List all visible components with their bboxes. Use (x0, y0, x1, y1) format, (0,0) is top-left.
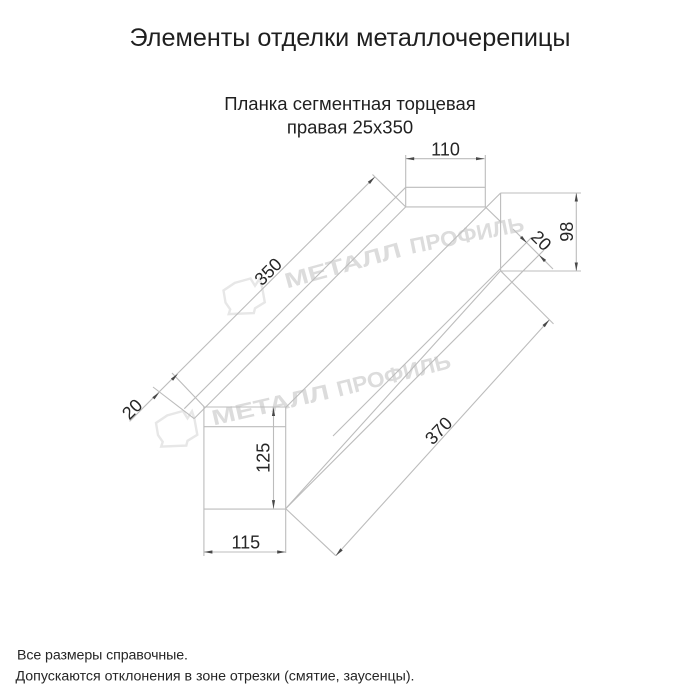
svg-text:правая 25х350: правая 25х350 (287, 117, 413, 138)
svg-text:98: 98 (557, 222, 577, 242)
svg-text:Планка сегментная торцевая: Планка сегментная торцевая (224, 93, 476, 114)
svg-text:125: 125 (254, 443, 274, 473)
svg-text:Элементы отделки металлочерепи: Элементы отделки металлочерепицы (130, 24, 571, 52)
svg-text:Все размеры справочные.: Все размеры справочные. (17, 648, 188, 664)
svg-text:115: 115 (231, 533, 260, 553)
svg-text:Допускаются отклонения в зоне: Допускаются отклонения в зоне отрезки (с… (16, 669, 415, 685)
svg-text:110: 110 (431, 140, 460, 160)
